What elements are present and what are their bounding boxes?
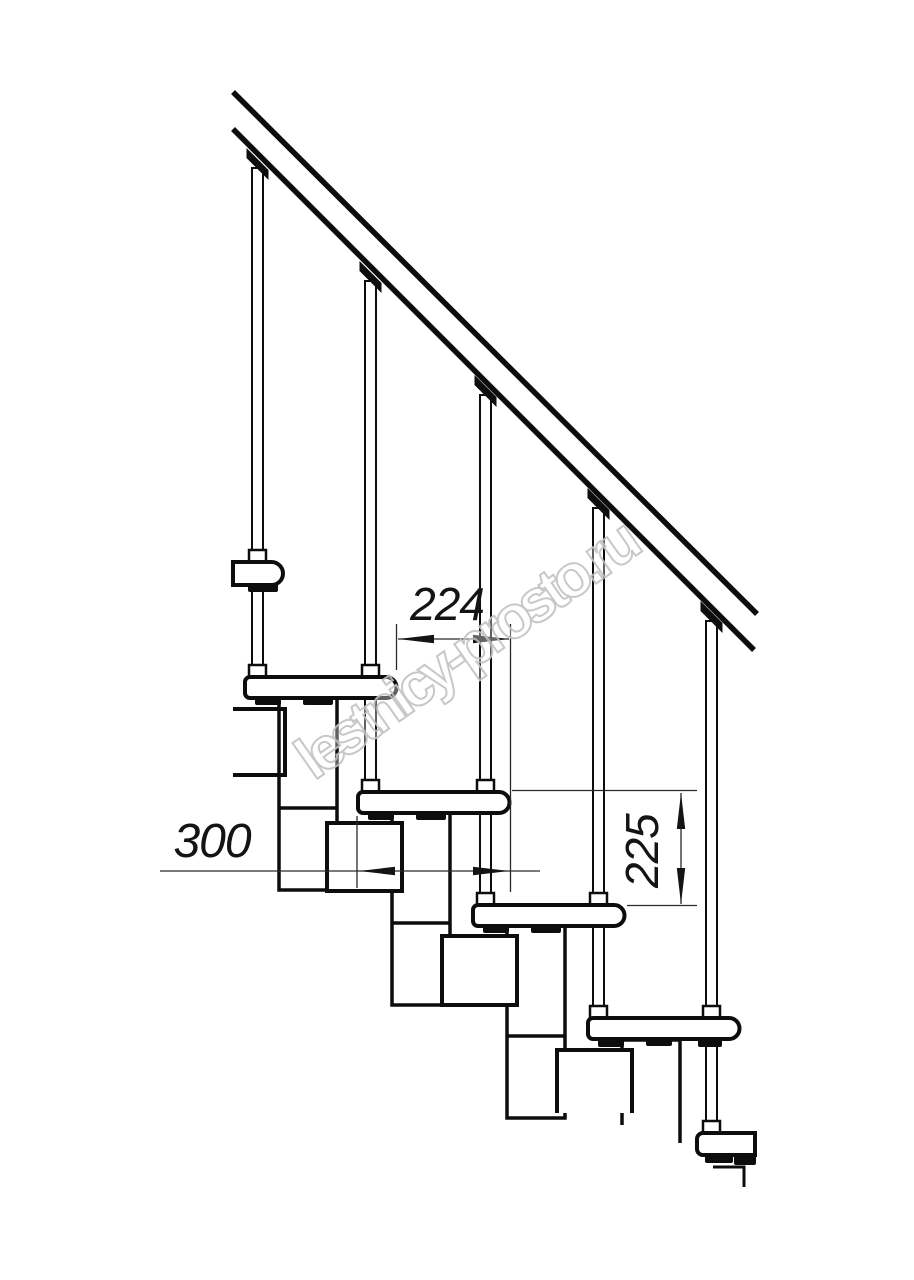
bolt-plate: [734, 1156, 756, 1165]
baluster-1: [252, 168, 263, 678]
arrow-up: [677, 793, 685, 829]
arrow-down: [677, 868, 685, 904]
dim-value-rise: 225: [616, 813, 668, 889]
tread-stub-bottom: [697, 1133, 755, 1155]
module-box-cut-left: [233, 709, 285, 775]
handrail: [233, 92, 757, 650]
tread-2: [358, 792, 510, 813]
tread-stub-top: [233, 562, 283, 585]
baluster-5: [706, 621, 717, 1133]
handrail-lower-line: [233, 129, 754, 650]
handrail-upper-line: [233, 92, 757, 614]
tread-3: [473, 905, 625, 926]
staircase-technical-drawing: 224 300 225 lestnicy-prosto.ru: [0, 0, 914, 1280]
module-box-3: [442, 936, 517, 1005]
module-box-2: [327, 823, 402, 891]
dim-value-tread-length: 300: [173, 815, 251, 868]
fragment-cut-hook: [713, 1167, 744, 1187]
module-box-4-cut: [557, 1050, 632, 1113]
tread-4: [588, 1018, 740, 1039]
drawing-canvas: 224 300 225 lestnicy-prosto.ru: [0, 0, 914, 1280]
